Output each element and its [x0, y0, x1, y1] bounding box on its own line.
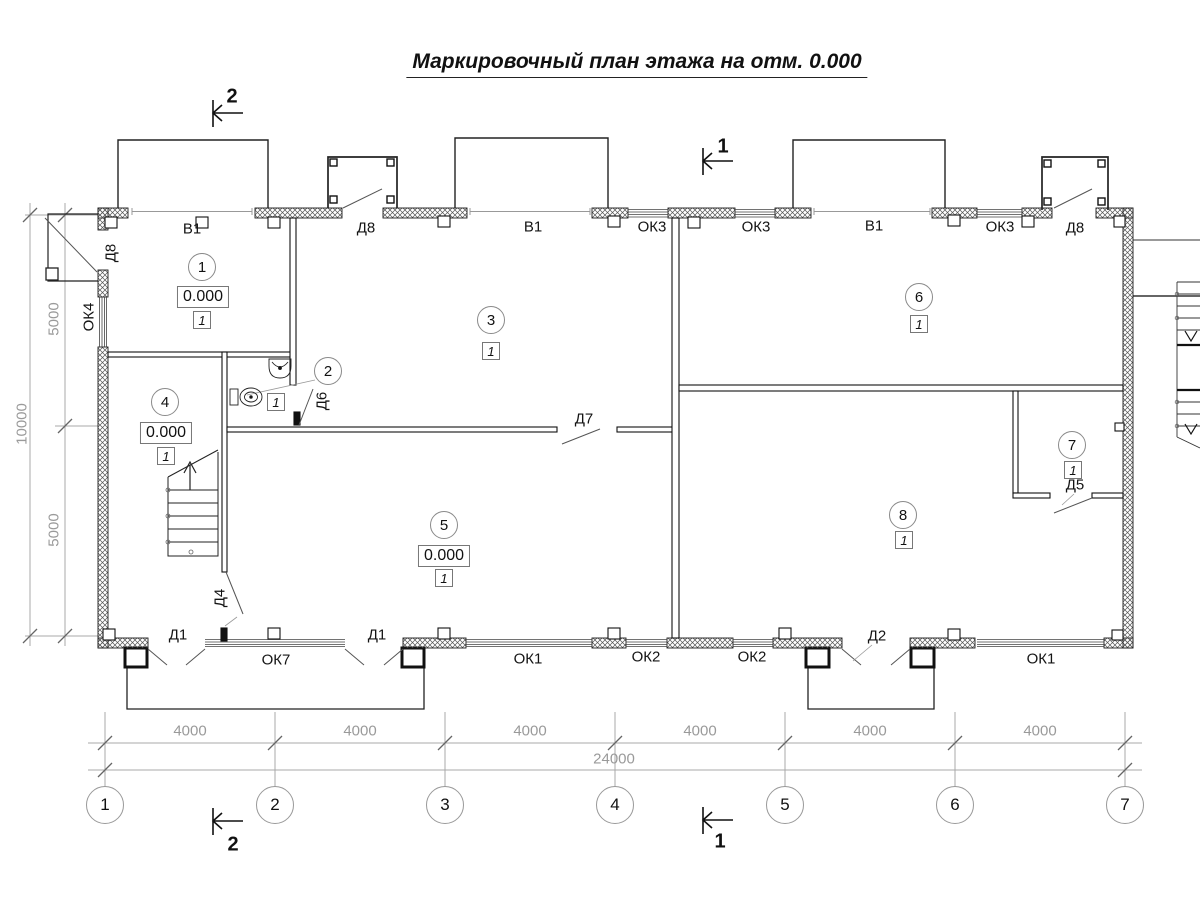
window-mark-ok1-2: ОК1	[1027, 651, 1056, 668]
grid-axis-label: 1	[100, 795, 109, 815]
room-number-circle: 2	[314, 357, 342, 385]
room-number: 8	[899, 507, 907, 524]
elevation-box: 0.000	[140, 422, 192, 444]
window-mark-ok1-1: ОК1	[514, 651, 543, 668]
room-type-box: 1	[193, 311, 211, 329]
room-type-box: 1	[910, 315, 928, 333]
gate-mark-v1-1: В1	[183, 221, 201, 238]
grid-axis-label: 3	[440, 795, 449, 815]
gate-mark-v1-2: В1	[524, 219, 542, 236]
room-type-box: 1	[1064, 461, 1082, 479]
toilet-icon	[230, 389, 238, 405]
dim-left-lower: 5000	[46, 513, 63, 546]
section-2-bottom-label: 2	[227, 834, 238, 857]
room-type-box: 1	[482, 342, 500, 360]
room-number-circle: 5	[430, 511, 458, 539]
dim-total: 24000	[593, 751, 635, 768]
dim-span-1: 4000	[173, 723, 206, 740]
interior-stair	[166, 450, 218, 556]
room-number: 4	[161, 394, 169, 411]
dim-span-2: 4000	[343, 723, 376, 740]
door-mark-d6: Д6	[314, 392, 331, 411]
elevation-box: 0.000	[177, 286, 229, 308]
door-mark-d4: Д4	[212, 589, 229, 608]
left-porch	[46, 214, 98, 281]
grid-axis-label: 5	[780, 795, 789, 815]
grid-axis-5: 5	[766, 786, 804, 824]
section-1-bottom-label: 1	[714, 831, 725, 854]
grid-axis-7: 7	[1106, 786, 1144, 824]
room-number-circle: 7	[1058, 431, 1086, 459]
room-number: 5	[440, 517, 448, 534]
window-mark-ok3-1: ОК3	[638, 219, 667, 236]
dim-span-4: 4000	[683, 723, 716, 740]
room-number-circle: 8	[889, 501, 917, 529]
gate-mark-v1-3: В1	[865, 218, 883, 235]
dim-span-6: 4000	[1023, 723, 1056, 740]
door-mark-d8-top1: Д8	[357, 220, 376, 237]
door-mark-d7: Д7	[575, 411, 594, 428]
room-number-circle: 3	[477, 306, 505, 334]
door-mark-d5: Д5	[1066, 477, 1085, 494]
grid-axis-label: 7	[1120, 795, 1129, 815]
window-mark-ok3-3: ОК3	[986, 219, 1015, 236]
vestibule-posts	[330, 159, 1105, 205]
door-mark-d2: Д2	[868, 628, 887, 645]
door-mark-d1-1: Д1	[169, 627, 188, 644]
room-number-circle: 4	[151, 388, 179, 416]
room-number: 6	[915, 289, 923, 306]
dim-span-3: 4000	[513, 723, 546, 740]
room-type-box: 1	[267, 393, 285, 411]
grid-axis-6: 6	[936, 786, 974, 824]
grid-axis-3: 3	[426, 786, 464, 824]
door-mark-d1-2: Д1	[368, 627, 387, 644]
dim-left-total: 10000	[14, 403, 31, 445]
window-mark-ok3-2: ОК3	[742, 219, 771, 236]
room-number: 1	[198, 259, 206, 276]
grid-axis-1: 1	[86, 786, 124, 824]
interior-walls	[108, 218, 1123, 638]
room-type-box: 1	[895, 531, 913, 549]
elevation-box: 0.000	[418, 545, 470, 567]
window-mark-ok2-1: ОК2	[632, 649, 661, 666]
grid-axis-label: 6	[950, 795, 959, 815]
room-number-circle: 6	[905, 283, 933, 311]
floor-plan-drawing: Маркировочный план этажа на отм. 0.000 Д…	[0, 0, 1200, 900]
dim-left-upper: 5000	[46, 302, 63, 335]
section-1-top-label: 1	[717, 136, 728, 159]
window-mark-ok7: ОК7	[262, 652, 291, 669]
dim-span-5: 4000	[853, 723, 886, 740]
room-type-box: 1	[435, 569, 453, 587]
leader-lines	[225, 380, 1074, 661]
door-mark-d8-top2: Д8	[1066, 220, 1085, 237]
grid-axis-label: 2	[270, 795, 279, 815]
grid-axis-4: 4	[596, 786, 634, 824]
room-type-box: 1	[157, 447, 175, 465]
page-title: Маркировочный план этажа на отм. 0.000	[406, 50, 867, 78]
room-number: 2	[324, 363, 332, 380]
grid-axis-2: 2	[256, 786, 294, 824]
window-mark-ok4: ОК4	[81, 303, 98, 332]
canopies	[118, 138, 1108, 210]
section-2-top-label: 2	[226, 86, 237, 109]
room-number: 3	[487, 312, 495, 329]
room-number-circle: 1	[188, 253, 216, 281]
exterior-stair	[1133, 240, 1200, 448]
room-number: 7	[1068, 437, 1076, 454]
grid-axis-label: 4	[610, 795, 619, 815]
window-mark-ok2-2: ОК2	[738, 649, 767, 666]
door-mark-d8-left: Д8	[103, 244, 120, 263]
